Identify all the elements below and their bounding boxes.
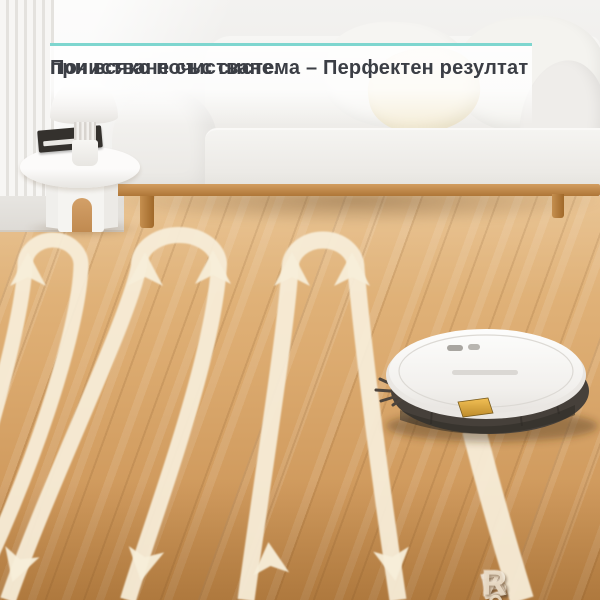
product-marketing-image: B A Z A R Почистване със система – Перфе…: [0, 0, 600, 600]
headline-line-2: при всяко почистване.: [50, 55, 279, 82]
headline-banner: Почистване със система – Перфектен резул…: [50, 43, 532, 125]
sofa-floor-shadow: [108, 192, 600, 224]
table-pedestal-arch: [72, 198, 92, 232]
watermark-letter: R: [481, 566, 504, 600]
sofa-seat-cushion: [205, 128, 600, 190]
sofa-wood-leg: [140, 196, 154, 228]
floor-vignette: [0, 196, 600, 600]
wood-sofa-rail: [112, 184, 600, 196]
table-lamp-neck: [74, 122, 96, 142]
sofa-wood-leg: [552, 194, 564, 218]
table-lamp-base: [72, 140, 98, 166]
